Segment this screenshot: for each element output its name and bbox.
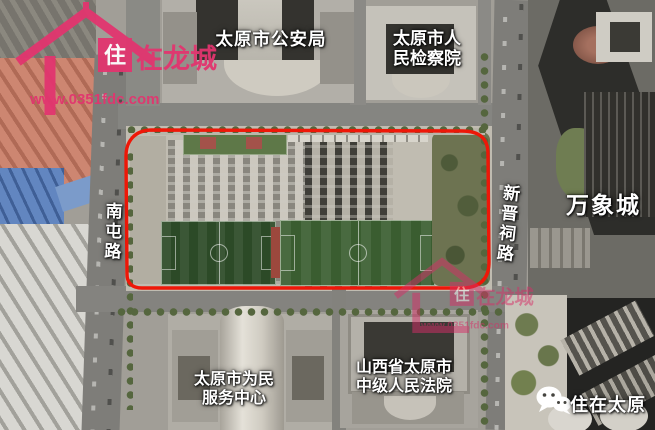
mall-annex-roof (530, 228, 590, 268)
field-center-circle (349, 244, 367, 262)
label-wechat-account: 住在太原 (570, 391, 646, 417)
field-center-circle (210, 244, 228, 262)
label-wanxiang-city: 万象城 (566, 186, 641, 220)
red-track-strip (271, 227, 280, 278)
service-center-garden (292, 356, 324, 400)
football-field-west (161, 221, 276, 285)
tree-line (478, 50, 491, 425)
east-building-courtyard (610, 22, 640, 52)
label-nantun-road: 南屯路 (98, 202, 125, 263)
label-line: 山西省太原市 (348, 358, 460, 377)
label-service-center: 太原市为民 服务中心 (182, 370, 286, 408)
label-line: 太原市人 (388, 29, 466, 49)
label-court: 山西省太原市 中级人民法院 (348, 358, 460, 396)
field-penalty-box (162, 236, 176, 271)
label-line: 服务中心 (182, 389, 286, 408)
minor-road-north (126, 0, 160, 106)
label-line: 民检察院 (388, 49, 466, 69)
label-police-bureau: 太原市公安局 (196, 26, 346, 51)
football-field-east (280, 220, 435, 286)
tree-line (115, 305, 505, 316)
tree-line (124, 150, 133, 410)
service-center-arched-hall (220, 306, 284, 430)
label-line: 中级人民法院 (348, 377, 460, 396)
field-penalty-box (281, 235, 295, 271)
police-bureau-west-wing (163, 12, 197, 84)
label-line: 太原市为民 (182, 370, 286, 389)
satellite-map: 住 在龙城 www.0351fdc.com 住 在龙城 www.0351fdc.… (0, 0, 655, 430)
label-procuratorate: 太原市人 民检察院 (388, 29, 466, 69)
tree-line (125, 123, 490, 133)
industrial-roofs-blue (0, 168, 64, 230)
